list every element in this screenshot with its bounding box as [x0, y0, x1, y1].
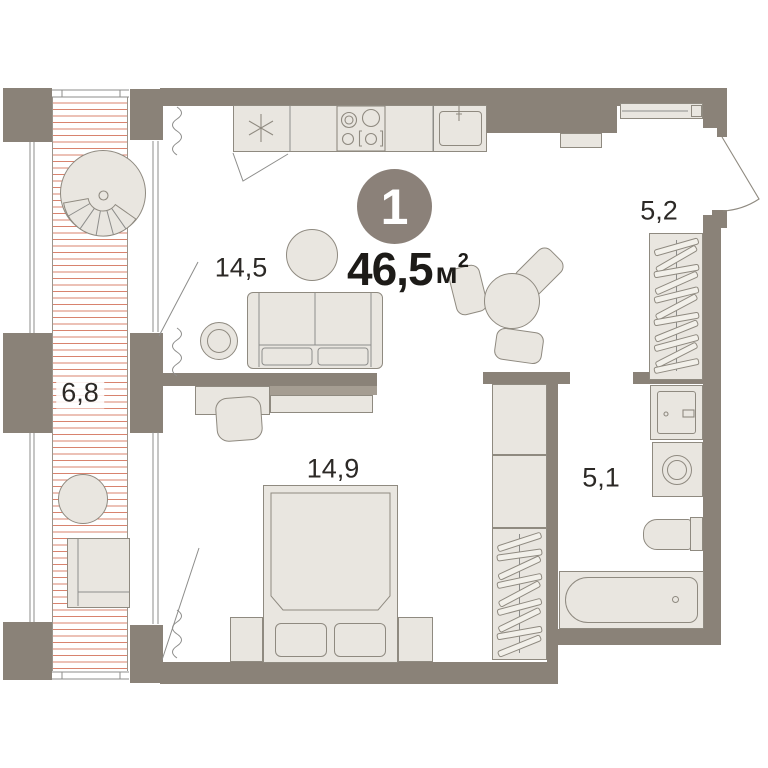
toilet-tank: [690, 517, 703, 551]
total-area: 46,5 м 2: [347, 246, 469, 292]
floor-plan: 14,5 14,9 6,8 5,2 5,1 1 46,5 м 2: [0, 0, 768, 768]
console: [270, 395, 373, 413]
wall-living-bedroom-low: [270, 386, 377, 395]
bathtub-drain: [672, 596, 679, 603]
nightstand-left: [230, 617, 263, 662]
wall-bathroom-bottom: [547, 629, 721, 645]
balcony-bench: [67, 538, 130, 608]
total-area-unit: м: [436, 259, 458, 289]
kitchen-shaft-block: [487, 88, 617, 133]
pillow-right: [334, 623, 386, 657]
desk-chair: [215, 395, 264, 442]
hallway-wardrobe: [649, 233, 703, 380]
shaft-tab: [560, 133, 602, 148]
facade-pier-bottom: [130, 625, 163, 683]
pillow-left: [275, 623, 327, 657]
door-hinge-stub: [717, 128, 727, 137]
hallway-shelf-bracket: [691, 105, 702, 117]
rug-circle: [286, 229, 338, 281]
balcony-table: [58, 474, 108, 524]
wall-top-right-corner: [703, 88, 727, 128]
bathroom-area-label: 5,1: [582, 463, 620, 494]
balcony-door-leaders: [159, 262, 199, 660]
kitchen-sink-basin: [439, 111, 482, 146]
wall-right: [703, 215, 721, 641]
dining-chair-3: [493, 327, 545, 365]
fridge-door-swing: [233, 153, 288, 181]
wardrobe-cabinet-top: [492, 384, 547, 455]
balcony-pier-top: [3, 88, 52, 142]
hallway-area-label: 5,2: [640, 196, 678, 227]
total-area-value: 46,5: [347, 246, 433, 292]
wardrobe-hanger-section: [492, 528, 547, 660]
room-count-badge: 1: [357, 169, 432, 244]
balcony-pier-middle: [3, 333, 52, 433]
facade-pier-top: [130, 89, 163, 140]
dining-table: [484, 273, 540, 329]
sofa: [247, 292, 383, 369]
hanging-chair: [60, 150, 146, 236]
bath-sink-basin: [657, 391, 696, 434]
side-table-inner: [207, 329, 231, 353]
nightstand-right: [398, 617, 433, 662]
balcony-area-label: 6,8: [56, 378, 104, 409]
bedroom-area-label: 14,9: [307, 454, 360, 485]
toilet-bowl: [643, 519, 691, 550]
living-area-label: 14,5: [215, 253, 268, 284]
balcony-pier-bottom: [3, 622, 52, 680]
wardrobe-cabinet-mid: [492, 455, 547, 528]
room-count: 1: [381, 178, 409, 236]
facade-pier-middle: [130, 333, 163, 433]
washing-machine-drum-inner: [667, 460, 687, 480]
wall-bedroom-bottom: [160, 662, 558, 684]
total-area-exponent: 2: [458, 251, 469, 271]
entrance-door-swing-icon: [722, 137, 759, 211]
wall-living-bedroom: [163, 373, 377, 386]
